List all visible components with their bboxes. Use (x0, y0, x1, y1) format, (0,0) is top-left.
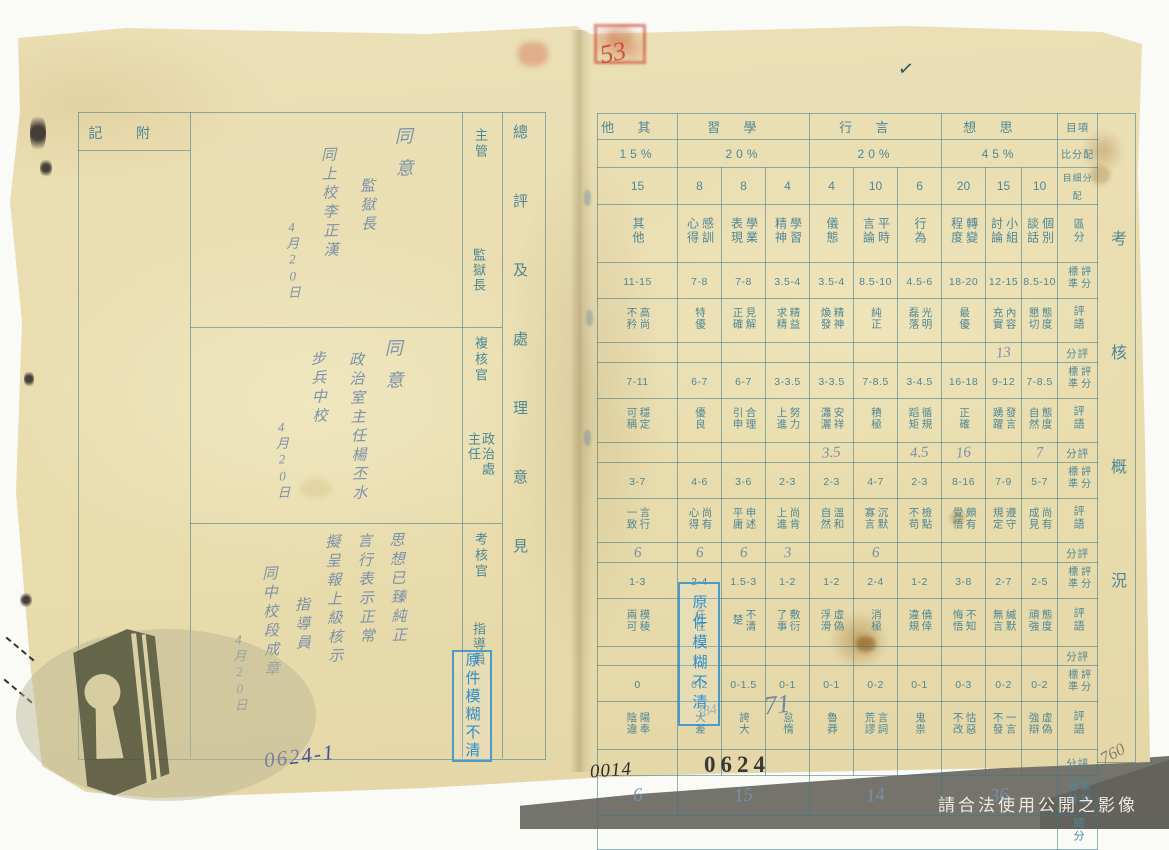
points-row: 15 8 8 4 4 10 6 20 15 10 目細分配 (598, 168, 1098, 205)
ratio-row: 15% 20% 20% 45% 比分配 (598, 140, 1098, 168)
remark-cell: 消極 (854, 599, 898, 647)
row-label: 分評 (1058, 343, 1098, 363)
remark-cell: 遵守規定 (986, 499, 1022, 543)
score-row: 分評 (598, 647, 1098, 666)
category-header-row: 他其 習學 行言 想思 目項 (598, 114, 1098, 140)
std-cell: 8-16 (942, 463, 986, 499)
score-row: 66636分評 (598, 543, 1098, 563)
remark-row: 高尚不矜特優見解正確精益求精精神煥發純正光明磊落最優內容充實態度懇切評語 (598, 299, 1098, 343)
points-cell: 15 (986, 168, 1022, 205)
binding-smudge (586, 310, 593, 326)
score-cell (1022, 343, 1058, 363)
row-label: 評語 (1058, 299, 1098, 343)
score-row: 3.54.5167分評 (598, 443, 1098, 463)
row-label: 區分 (1058, 205, 1098, 263)
std-cell: 0-2 (986, 666, 1022, 702)
std-row: 00-20-1.50-10-10-20-10-30-20-2評分標準 (598, 666, 1098, 702)
std-cell: 7-8 (722, 263, 766, 299)
std-cell: 4.5-6 (898, 263, 942, 299)
remark-cell: 精神煥發 (810, 299, 854, 343)
score-cell (766, 647, 810, 666)
score-cell: 3 (766, 543, 810, 563)
remark-cell: 溫和自然 (810, 499, 854, 543)
score-cell (854, 443, 898, 463)
points-cell: 10 (1022, 168, 1058, 205)
std-cell: 8.5-10 (1022, 263, 1058, 299)
red-smudge-stamp (518, 42, 548, 66)
score-cell (678, 343, 722, 363)
paper-hole (24, 370, 34, 388)
row-label: 分評 (1058, 543, 1098, 563)
std-cell: 0 (598, 666, 678, 702)
std-cell: 3-7 (598, 463, 678, 499)
score-cell (898, 647, 942, 666)
score-cell (942, 543, 986, 563)
subitem-cell: 感訓心得 (678, 205, 722, 263)
score-cell (1022, 543, 1058, 563)
remark-cell: 努力上進 (766, 399, 810, 443)
subitem-cell: 其他 (598, 205, 678, 263)
std-cell: 6-7 (678, 363, 722, 399)
left-table-line (78, 150, 190, 151)
paper-hole (30, 112, 46, 154)
row-label: 評分標準 (1058, 463, 1098, 499)
points-cell: 4 (766, 168, 810, 205)
subitem-cell: 個別談話 (1022, 205, 1058, 263)
std-cell: 1.5-3 (722, 563, 766, 599)
ratio-cell: 45% (942, 140, 1058, 168)
std-row: 11-157-87-83.5-43.5-48.5-104.5-618-2012-… (598, 263, 1098, 299)
total-row: 總分 (598, 816, 1098, 850)
row-label: 目項 (1058, 114, 1098, 140)
score-cell (854, 343, 898, 363)
subitem-cell: 行為 (898, 205, 942, 263)
std-cell: 6-7 (722, 363, 766, 399)
remark-cell: 尚肯上進 (766, 499, 810, 543)
std-cell: 1-3 (598, 563, 678, 599)
score-row: 分評 (598, 750, 1098, 776)
std-cell: 2-5 (1022, 563, 1058, 599)
remark-cell: 緘默無言 (986, 599, 1022, 647)
std-cell: 7-9 (986, 463, 1022, 499)
remark-cell: 沉默寡言 (854, 499, 898, 543)
remark-cell: 僥倖違規 (898, 599, 942, 647)
remark-row: 陽奉陰違大差誇大怠惰魯莽言詞荒謬鬼祟怙惡不改一言不發虛偽強辯評語 (598, 702, 1098, 750)
remark-cell: 頗有覺悟 (942, 499, 986, 543)
binding-smudge (584, 430, 591, 446)
appendix-note-label: 記附 (86, 118, 186, 148)
row-label: 評語 (1058, 702, 1098, 750)
ratio-cell: 15% (598, 140, 678, 168)
row-label: 評分標準 (1058, 263, 1098, 299)
row-label: 評分標準 (1058, 563, 1098, 599)
score-cell (1022, 750, 1058, 776)
std-cell: 5-7 (1022, 463, 1058, 499)
remark-cell: 合理引申 (722, 399, 766, 443)
std-row: 3-74-63-62-32-34-72-38-167-95-7評分標準 (598, 463, 1098, 499)
score-cell: 13 (986, 343, 1022, 363)
remark-cell: 態度自然 (1022, 399, 1058, 443)
score-cell (986, 750, 1022, 776)
row-label: 分評 (1058, 647, 1098, 666)
score-cell (598, 647, 678, 666)
std-cell: 3-3.5 (810, 363, 854, 399)
remark-cell: 怙惡不改 (942, 702, 986, 750)
handwritten-approval-2: 同意 政治室主任楊丕水 步兵中校 4月20日 (259, 338, 416, 538)
subitem-cell: 轉變程度 (942, 205, 986, 263)
remark-cell: 態度頑強 (1022, 599, 1058, 647)
binding-smudge (584, 190, 591, 206)
total-cell (598, 816, 1058, 850)
score-cell (854, 750, 898, 776)
row-label: 目細分配 (1058, 168, 1098, 205)
remark-cell: 虛偽強辯 (1022, 702, 1058, 750)
sheet-number: 0014 (589, 759, 632, 784)
std-cell: 1-2 (766, 563, 810, 599)
score-cell (986, 647, 1022, 666)
std-cell: 1-2 (810, 563, 854, 599)
remark-cell: 特優 (678, 299, 722, 343)
remark-cell: 正確 (942, 399, 986, 443)
std-cell: 0-1.5 (722, 666, 766, 702)
std-cell: 3-8 (942, 563, 986, 599)
archives-watermark-logo (8, 620, 318, 810)
subitem-cell: 平時言論 (854, 205, 898, 263)
score-cell (722, 443, 766, 463)
remark-cell: 誇大 (722, 702, 766, 750)
role-title-label: 政治處主任 (466, 432, 494, 488)
score-cell (598, 443, 678, 463)
remark-cell: 申述平庸 (722, 499, 766, 543)
std-cell: 18-20 (942, 263, 986, 299)
blurry-original-stamp-left: 原件模糊不清 (452, 650, 492, 762)
subitem-cell: 學業表現 (722, 205, 766, 263)
book-keyhole-icon (71, 626, 171, 798)
points-cell: 10 (854, 168, 898, 205)
std-cell: 1-2 (898, 563, 942, 599)
points-cell: 8 (678, 168, 722, 205)
std-cell: 3.5-4 (766, 263, 810, 299)
std-cell: 4-7 (854, 463, 898, 499)
std-cell: 7-8.5 (1022, 363, 1058, 399)
score-cell (986, 543, 1022, 563)
remark-cell: 模稜兩可 (598, 599, 678, 647)
std-row: 7-116-76-73-3.53-3.57-8.53-4.516-189-127… (598, 363, 1098, 399)
row-label: 評語 (1058, 399, 1098, 443)
remark-cell: 不知悔悟 (942, 599, 986, 647)
score-cell (810, 750, 854, 776)
std-row: 1-32-41.5-31-21-22-41-23-82-72-5評分標準 (598, 563, 1098, 599)
score-row: 13分評 (598, 343, 1098, 363)
remark-cell: 不清楚 (722, 599, 766, 647)
remark-cell: 虛偽浮滑 (810, 599, 854, 647)
subtotal-cell: 14 (810, 776, 942, 816)
score-cell: 6 (854, 543, 898, 563)
score-cell (722, 647, 766, 666)
subitem-cell: 儀態 (810, 205, 854, 263)
page-number-stamp: 0624 (704, 752, 770, 778)
evaluation-table: 他其 習學 行言 想思 目項 15% 20% 20% 45% 比分配 15 8 … (597, 113, 1098, 850)
points-cell: 6 (898, 168, 942, 205)
std-cell: 12-15 (986, 263, 1022, 299)
remark-cell: 言行一致 (598, 499, 678, 543)
score-cell (766, 343, 810, 363)
ratio-cell: 20% (810, 140, 942, 168)
score-cell: 4.5 (898, 443, 942, 463)
score-cell (898, 343, 942, 363)
remark-cell: 發言踴躍 (986, 399, 1022, 443)
score-cell (898, 750, 942, 776)
remark-cell: 最優 (942, 299, 986, 343)
score-cell (1022, 647, 1058, 666)
remark-cell: 敷衍了事 (766, 599, 810, 647)
remark-cell: 光明磊落 (898, 299, 942, 343)
score-cell (942, 647, 986, 666)
points-cell: 15 (598, 168, 678, 205)
std-cell: 9-12 (986, 363, 1022, 399)
score-cell: 6 (722, 543, 766, 563)
remark-cell: 精益求精 (766, 299, 810, 343)
remark-cell: 內容充實 (986, 299, 1022, 343)
role-title-label: 監獄長 (471, 248, 485, 293)
score-cell: 6 (598, 543, 678, 563)
usage-notice: 請合法使用公開之影像 (938, 791, 1138, 816)
score-cell (598, 343, 678, 363)
blurry-original-stamp-right: 原件模糊不清 (678, 582, 720, 726)
row-label: 評語 (1058, 599, 1098, 647)
row-label: 評語 (1058, 499, 1098, 543)
remark-cell: 見解正確 (722, 299, 766, 343)
role-type-label: 複核官 (471, 336, 490, 384)
category-cell: 行言 (810, 114, 942, 140)
remark-cell: 安祥瀟灑 (810, 399, 854, 443)
score-cell (810, 543, 854, 563)
remark-cell: 一言不發 (986, 702, 1022, 750)
std-cell: 0-2 (1022, 666, 1058, 702)
remark-row: 模稜兩可任性不清楚敷衍了事虛偽浮滑消極僥倖違規不知悔悟緘默無言態度頑強評語 (598, 599, 1098, 647)
score-cell (810, 647, 854, 666)
checkmark-icon: ✓ (896, 57, 915, 82)
std-cell: 3.5-4 (810, 263, 854, 299)
score-cell (722, 343, 766, 363)
std-cell: 7-11 (598, 363, 678, 399)
category-cell: 他其 (598, 114, 678, 140)
remark-cell: 循規蹈矩 (898, 399, 942, 443)
std-cell: 0-2 (854, 666, 898, 702)
remark-cell: 優良 (678, 399, 722, 443)
row-label: 比分配 (1058, 140, 1098, 168)
remark-cell: 高尚不矜 (598, 299, 678, 343)
remark-cell: 純正 (854, 299, 898, 343)
paper-hole (20, 592, 32, 608)
ratio-cell: 20% (678, 140, 810, 168)
subitem-cell: 學習精神 (766, 205, 810, 263)
std-cell: 7-8.5 (854, 363, 898, 399)
std-cell: 7-8 (678, 263, 722, 299)
score-cell (766, 750, 810, 776)
std-cell: 0-1 (810, 666, 854, 702)
row-label: 分評 (1058, 750, 1098, 776)
score-cell: 6 (678, 543, 722, 563)
left-table-line (502, 112, 503, 758)
std-cell: 2-4 (854, 563, 898, 599)
score-cell (854, 647, 898, 666)
row-label: 評分標準 (1058, 666, 1098, 702)
role-type-label: 考核官 (471, 532, 490, 580)
division-row: 其他 感訓心得 學業表現 學習精神 儀態 平時言論 行為 轉變程度 小組討論 個… (598, 205, 1098, 263)
std-cell: 4-6 (678, 463, 722, 499)
remark-cell: 陽奉陰違 (598, 702, 678, 750)
score-cell: 16 (942, 443, 986, 463)
category-cell: 想思 (942, 114, 1058, 140)
std-cell: 2-3 (766, 463, 810, 499)
remark-cell: 態度懇切 (1022, 299, 1058, 343)
remark-cell: 鬼祟 (898, 702, 942, 750)
std-cell: 3-4.5 (898, 363, 942, 399)
points-cell: 8 (722, 168, 766, 205)
std-cell: 2-3 (810, 463, 854, 499)
remark-cell: 積極 (854, 399, 898, 443)
row-label: 評分標準 (1058, 363, 1098, 399)
row-label: 分評 (1058, 443, 1098, 463)
score-cell (942, 750, 986, 776)
remark-cell: 尚有心得 (678, 499, 722, 543)
remark-row: 穩定可稱優良合理引申努力上進安祥瀟灑積極循規蹈矩正確發言踴躍態度自然評語 (598, 399, 1098, 443)
score-cell (942, 343, 986, 363)
std-cell: 2-3 (898, 463, 942, 499)
std-cell: 8.5-10 (854, 263, 898, 299)
row-label: 總分 (1058, 816, 1098, 850)
assessment-overview-header: 考核概況 (1097, 113, 1136, 763)
remark-cell: 尚有成見 (1022, 499, 1058, 543)
category-cell: 習學 (678, 114, 810, 140)
remark-cell: 穩定可稱 (598, 399, 678, 443)
std-cell: 3-6 (722, 463, 766, 499)
left-table-line (190, 327, 502, 328)
std-cell: 0-1 (898, 666, 942, 702)
std-cell: 2-7 (986, 563, 1022, 599)
points-cell: 4 (810, 168, 854, 205)
subitem-cell: 小組討論 (986, 205, 1022, 263)
score-cell (986, 443, 1022, 463)
role-type-label: 主管 (471, 128, 490, 160)
paper-hole (40, 158, 52, 178)
handwritten-approval-1: 同意 監獄長 同上校李正漢 4月20日 (269, 126, 426, 326)
remark-cell: 檢點不苟 (898, 499, 942, 543)
score-cell (678, 443, 722, 463)
remark-cell: 魯莽 (810, 702, 854, 750)
score-cell (766, 443, 810, 463)
score-cell: 3.5 (810, 443, 854, 463)
overall-opinion-header: 總評及處理意見 (509, 124, 530, 752)
total-score-handwritten: 71 (763, 689, 792, 722)
std-cell: 3-3.5 (766, 363, 810, 399)
score-cell: 7 (1022, 443, 1058, 463)
std-cell: 11-15 (598, 263, 678, 299)
std-cell: 0-3 (942, 666, 986, 702)
remark-cell: 言詞荒謬 (854, 702, 898, 750)
remark-row: 言行一致尚有心得申述平庸尚肯上進溫和自然沉默寡言檢點不苟頗有覺悟遵守規定尚有成見… (598, 499, 1098, 543)
std-cell: 16-18 (942, 363, 986, 399)
center-fold (570, 30, 592, 772)
score-cell (898, 543, 942, 563)
points-cell: 20 (942, 168, 986, 205)
score-cell (810, 343, 854, 363)
subtotal-cell: 15 (678, 776, 810, 816)
